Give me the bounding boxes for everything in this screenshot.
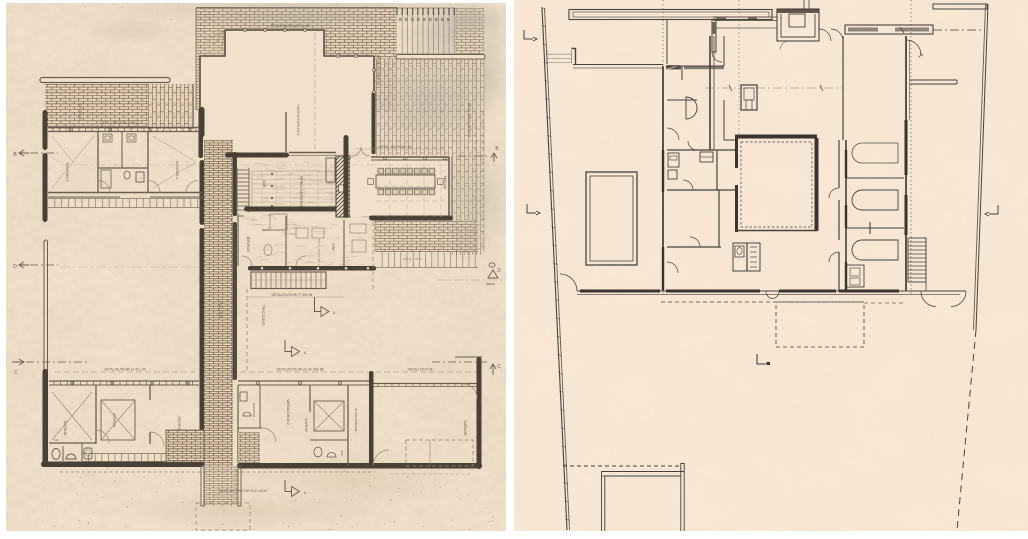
svg-text:DETALJRUTA NR 27 30X 84: DETALJRUTA NR 27 30X 84 xyxy=(272,293,313,297)
svg-text:C: C xyxy=(14,370,18,376)
svg-text:A: A xyxy=(304,491,307,495)
svg-text:TRÄDGÅRD: TRÄDGÅRD xyxy=(261,304,266,326)
svg-text:SOVRUM: SOVRUM xyxy=(304,418,308,432)
svg-text:GALLERI: GALLERI xyxy=(218,302,222,318)
svg-text:ÖPPEN GARDEROB: ÖPPEN GARDEROB xyxy=(299,176,303,209)
svg-text:DETALJRUTA NR 33-35: DETALJRUTA NR 33-35 xyxy=(467,103,471,138)
svg-text:C: C xyxy=(497,364,501,370)
svg-text:SOVRUM 1: SOVRUM 1 xyxy=(65,163,69,182)
svg-text:KLÄDKAMMARE: KLÄDKAMMARE xyxy=(354,408,358,431)
svg-text:SOVRUM: SOVRUM xyxy=(112,413,116,427)
svg-text:DETALJ NR 6: DETALJ NR 6 xyxy=(403,257,422,261)
svg-text:DETALJRUTA NR 21 49 o 50: DETALJRUTA NR 21 49 o 50 xyxy=(104,368,146,372)
svg-text:DETALJRUTA NR 31: DETALJRUTA NR 31 xyxy=(376,55,380,85)
svg-text:MATSAL: MATSAL xyxy=(443,176,447,190)
svg-text:DETALJRUTA NR 4: DETALJRUTA NR 4 xyxy=(317,239,321,266)
svg-text:VARDAGSRUM 1: VARDAGSRUM 1 xyxy=(296,104,301,136)
svg-text:SOVRUM: SOVRUM xyxy=(177,417,181,432)
svg-text:BAR: BAR xyxy=(262,181,266,189)
svg-text:DETALJRUTA NR 20: DETALJRUTA NR 20 xyxy=(379,145,411,149)
svg-text:WC: WC xyxy=(55,438,60,442)
svg-text:SERVRUM: SERVRUM xyxy=(246,236,250,252)
svg-text:D: D xyxy=(13,264,17,270)
svg-text:DETALJ NR N 28: DETALJ NR N 28 xyxy=(408,368,433,372)
svg-text:A: A xyxy=(333,311,336,315)
svg-text:DETALJRUTA NR 44-45: DETALJRUTA NR 44-45 xyxy=(271,24,310,28)
svg-text:GARAGE: GARAGE xyxy=(463,420,467,436)
svg-text:KÖK: KÖK xyxy=(331,243,335,251)
svg-text:DETALJ NR 36 38-39 40 41: DETALJ NR 36 38-39 40 41 xyxy=(100,121,140,125)
svg-text:TERRASS: TERRASS xyxy=(78,103,82,121)
svg-text:SOVRUM 2: SOVRUM 2 xyxy=(175,161,179,180)
svg-text:A: A xyxy=(304,351,307,355)
svg-text:DETALJRITNING NR 40,41,43,44: DETALJRITNING NR 40,41,43,44 xyxy=(219,489,267,493)
svg-text:VARDAGSRUM 2: VARDAGSRUM 2 xyxy=(286,399,290,424)
svg-text:KAPPRUM: KAPPRUM xyxy=(252,403,256,418)
svg-text:DETALJRUTA NR 24, 50, 50A 84: DETALJRUTA NR 24, 50, 50A 84 xyxy=(277,368,324,372)
svg-text:D: D xyxy=(497,268,501,274)
svg-text:BAD: BAD xyxy=(340,450,344,455)
